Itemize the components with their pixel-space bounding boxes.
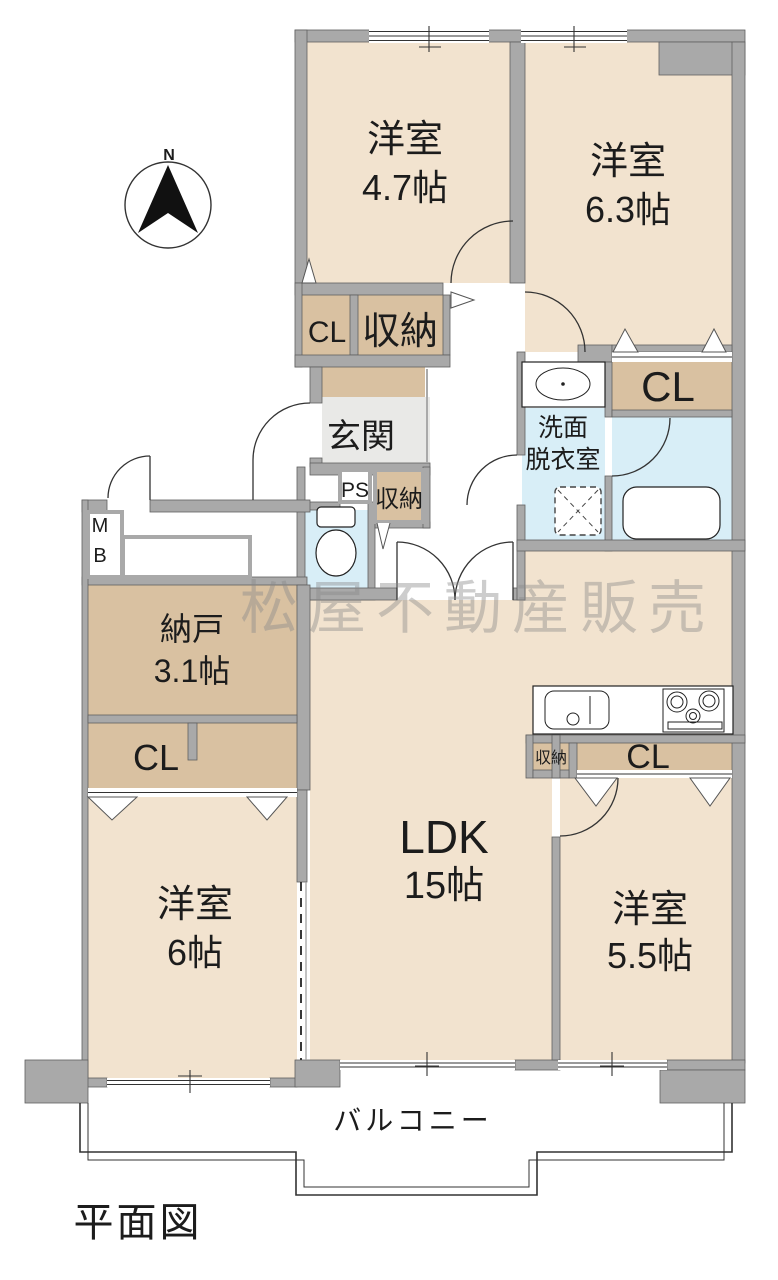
label-ldk-size: 15帖	[404, 865, 484, 907]
compass-north-label: N	[163, 147, 175, 164]
label-bedroom-w-name: 洋室	[157, 884, 233, 926]
label-cl-west: CL	[133, 737, 179, 778]
label-bedroom-nw-name: 洋室	[367, 119, 443, 161]
bathtub-icon	[623, 487, 720, 539]
compass-icon: N	[125, 147, 211, 248]
washing-machine-icon	[555, 487, 601, 535]
label-nando-name: 納戸	[160, 611, 224, 647]
label-washroom-line2: 脱衣室	[525, 446, 600, 474]
porch-alcove	[123, 537, 250, 577]
label-bedroom-ne-size: 6.3帖	[585, 189, 671, 230]
label-balcony: バルコニー	[333, 1105, 492, 1136]
partition-dashed	[301, 882, 306, 1060]
label-bedroom-w-size: 6帖	[167, 932, 223, 973]
bathroom-sink-icon	[522, 362, 605, 407]
label-oshiire-kitchen: 収納	[535, 749, 567, 767]
label-pipe-space: PS	[341, 479, 369, 502]
label-oshiire-hall: 収納	[375, 486, 423, 513]
toilet-icon	[316, 507, 356, 576]
watermark-text: 松屋不動産販売	[240, 576, 716, 641]
entrance-shoebox	[322, 367, 425, 397]
label-cl-northwest: CL	[308, 316, 346, 349]
label-bedroom-se-name: 洋室	[612, 889, 688, 931]
room-bedroom-nw	[307, 42, 510, 283]
floor-plan-drawing: N 洋室 4.7帖 洋室 6.3帖 洋室 6帖 LDK 15帖 洋室 5.5帖 …	[0, 0, 778, 1280]
label-bedroom-nw-size: 4.7帖	[362, 167, 448, 208]
label-cl-northeast: CL	[641, 363, 695, 410]
label-washroom-line1: 洗面	[538, 414, 588, 442]
label-ldk-name: LDK	[399, 811, 489, 863]
label-oshiire-northwest: 収納	[362, 311, 438, 353]
label-bedroom-ne-name: 洋室	[590, 141, 666, 183]
label-meter-box-b: B	[93, 545, 106, 567]
label-nando-size: 3.1帖	[154, 653, 231, 689]
floor-plan-title: 平面図	[74, 1201, 203, 1245]
floor-plan-page: N 洋室 4.7帖 洋室 6.3帖 洋室 6帖 LDK 15帖 洋室 5.5帖 …	[0, 0, 778, 1280]
label-bedroom-se-size: 5.5帖	[607, 935, 693, 976]
kitchen-counter	[533, 686, 733, 734]
label-cl-southeast: CL	[626, 738, 669, 776]
label-entrance: 玄関	[327, 418, 395, 456]
label-meter-box-m: M	[92, 515, 109, 537]
